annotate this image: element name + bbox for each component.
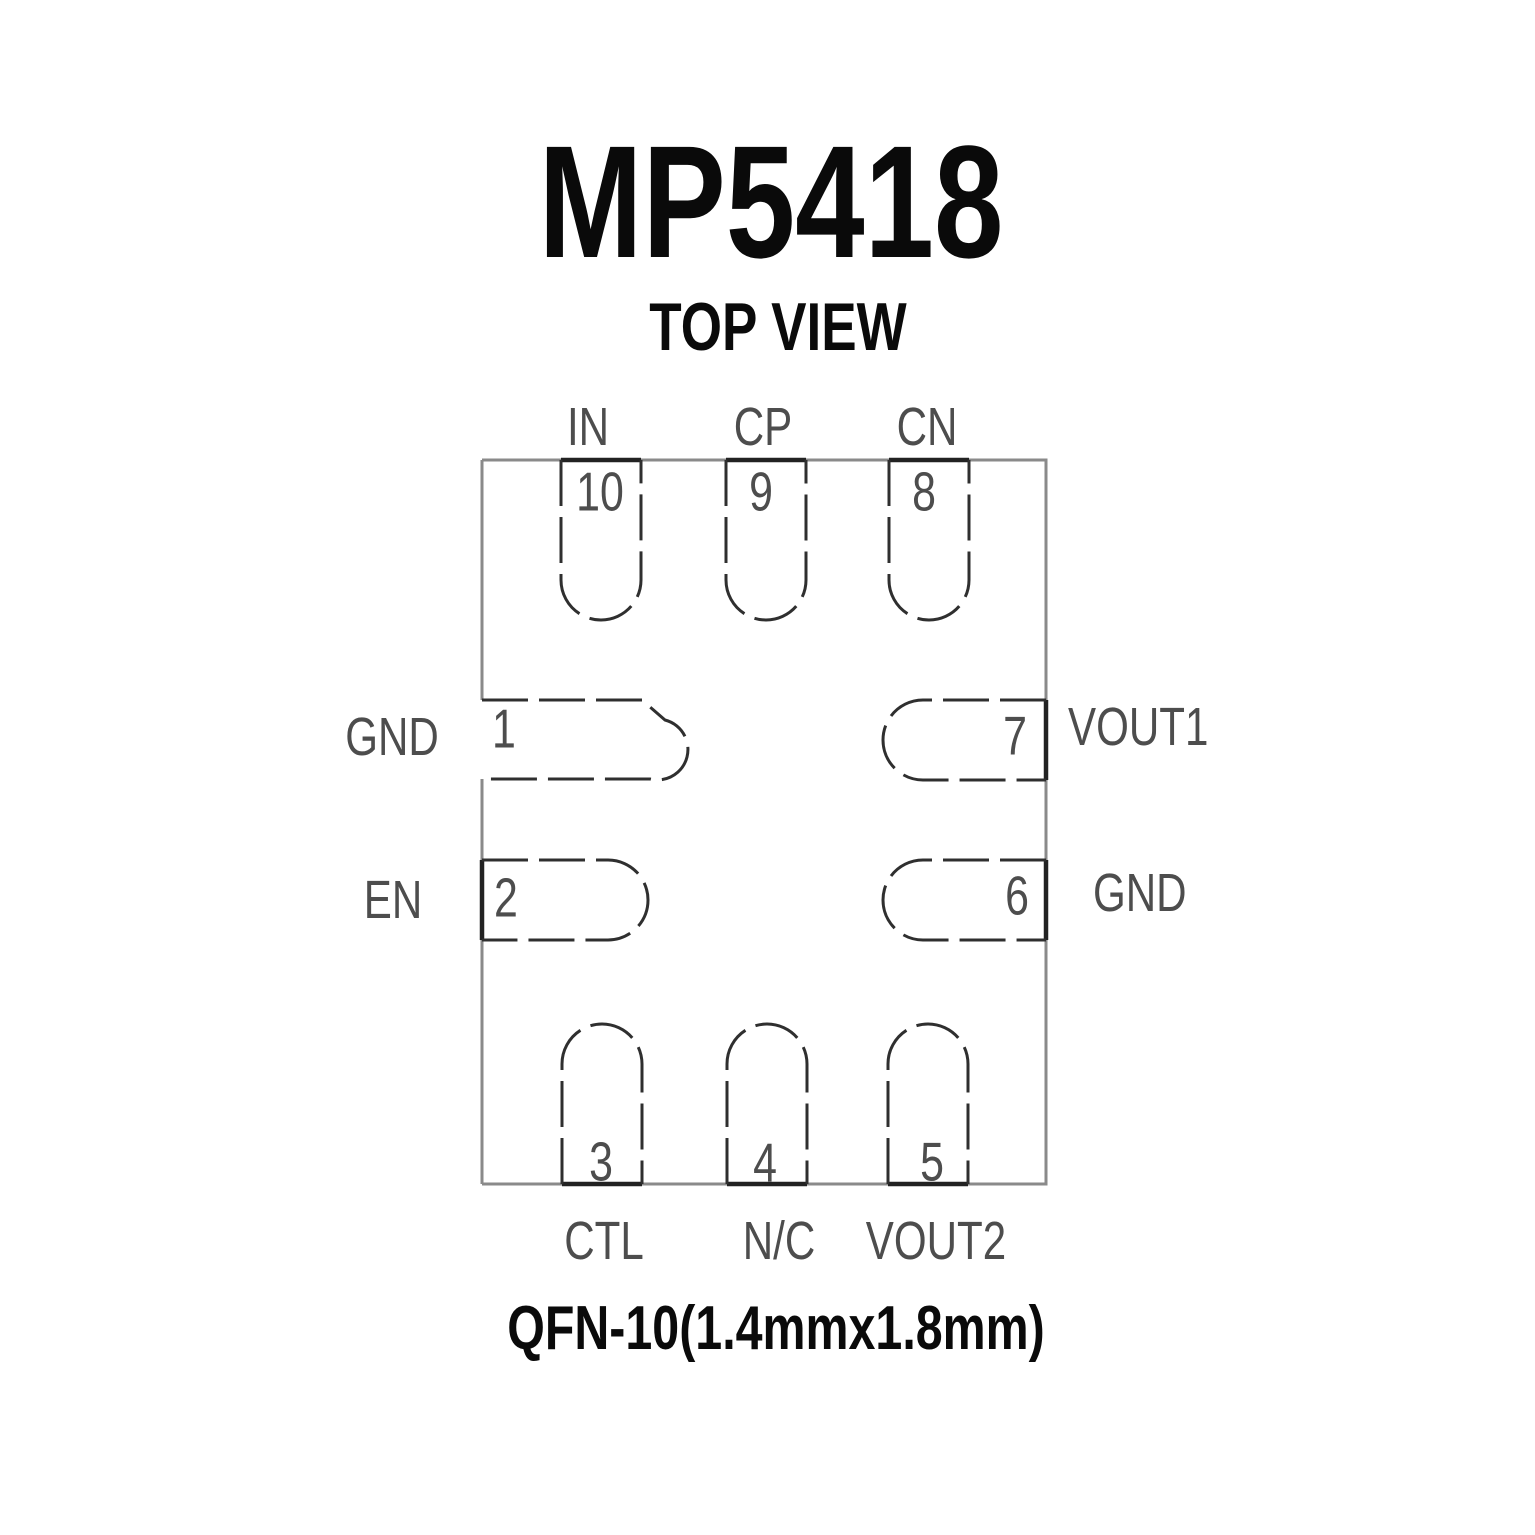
pin-10-number: 10	[576, 465, 624, 520]
pin-5-label: VOUT2	[866, 1214, 1006, 1268]
package-spec-label: QFN-10(1.4mmx1.8mm)	[507, 1298, 1045, 1360]
pin-7-number: 7	[1003, 709, 1027, 764]
pin-2-label: EN	[364, 873, 423, 927]
pin-5-number: 5	[920, 1135, 944, 1190]
pin-6-number: 6	[1005, 869, 1029, 924]
pin-10-label: IN	[567, 400, 609, 454]
chip-outline	[482, 460, 1046, 1184]
pinout-page: MP5418 TOP VIEW 1 2 3 4 5 6 7 8 9 10 IN …	[0, 0, 1535, 1535]
pin-1-label: GND	[345, 710, 439, 764]
pin-1-number: 1	[492, 702, 516, 757]
pin-8-number: 8	[912, 465, 936, 520]
pin-2-number: 2	[494, 871, 518, 926]
pin-3-number: 3	[589, 1135, 613, 1190]
pin-4-number: 4	[753, 1136, 777, 1191]
pin-6-label: GND	[1093, 866, 1187, 920]
pad-edge-marks	[482, 460, 1046, 1184]
pin-7-label: VOUT1	[1068, 700, 1208, 754]
pin-8-label: CN	[897, 400, 958, 454]
pin-9-number: 9	[749, 465, 773, 520]
pin-3-label: CTL	[564, 1214, 644, 1268]
pin-9-label: CP	[734, 400, 793, 454]
pin-4-label: N/C	[743, 1214, 816, 1268]
